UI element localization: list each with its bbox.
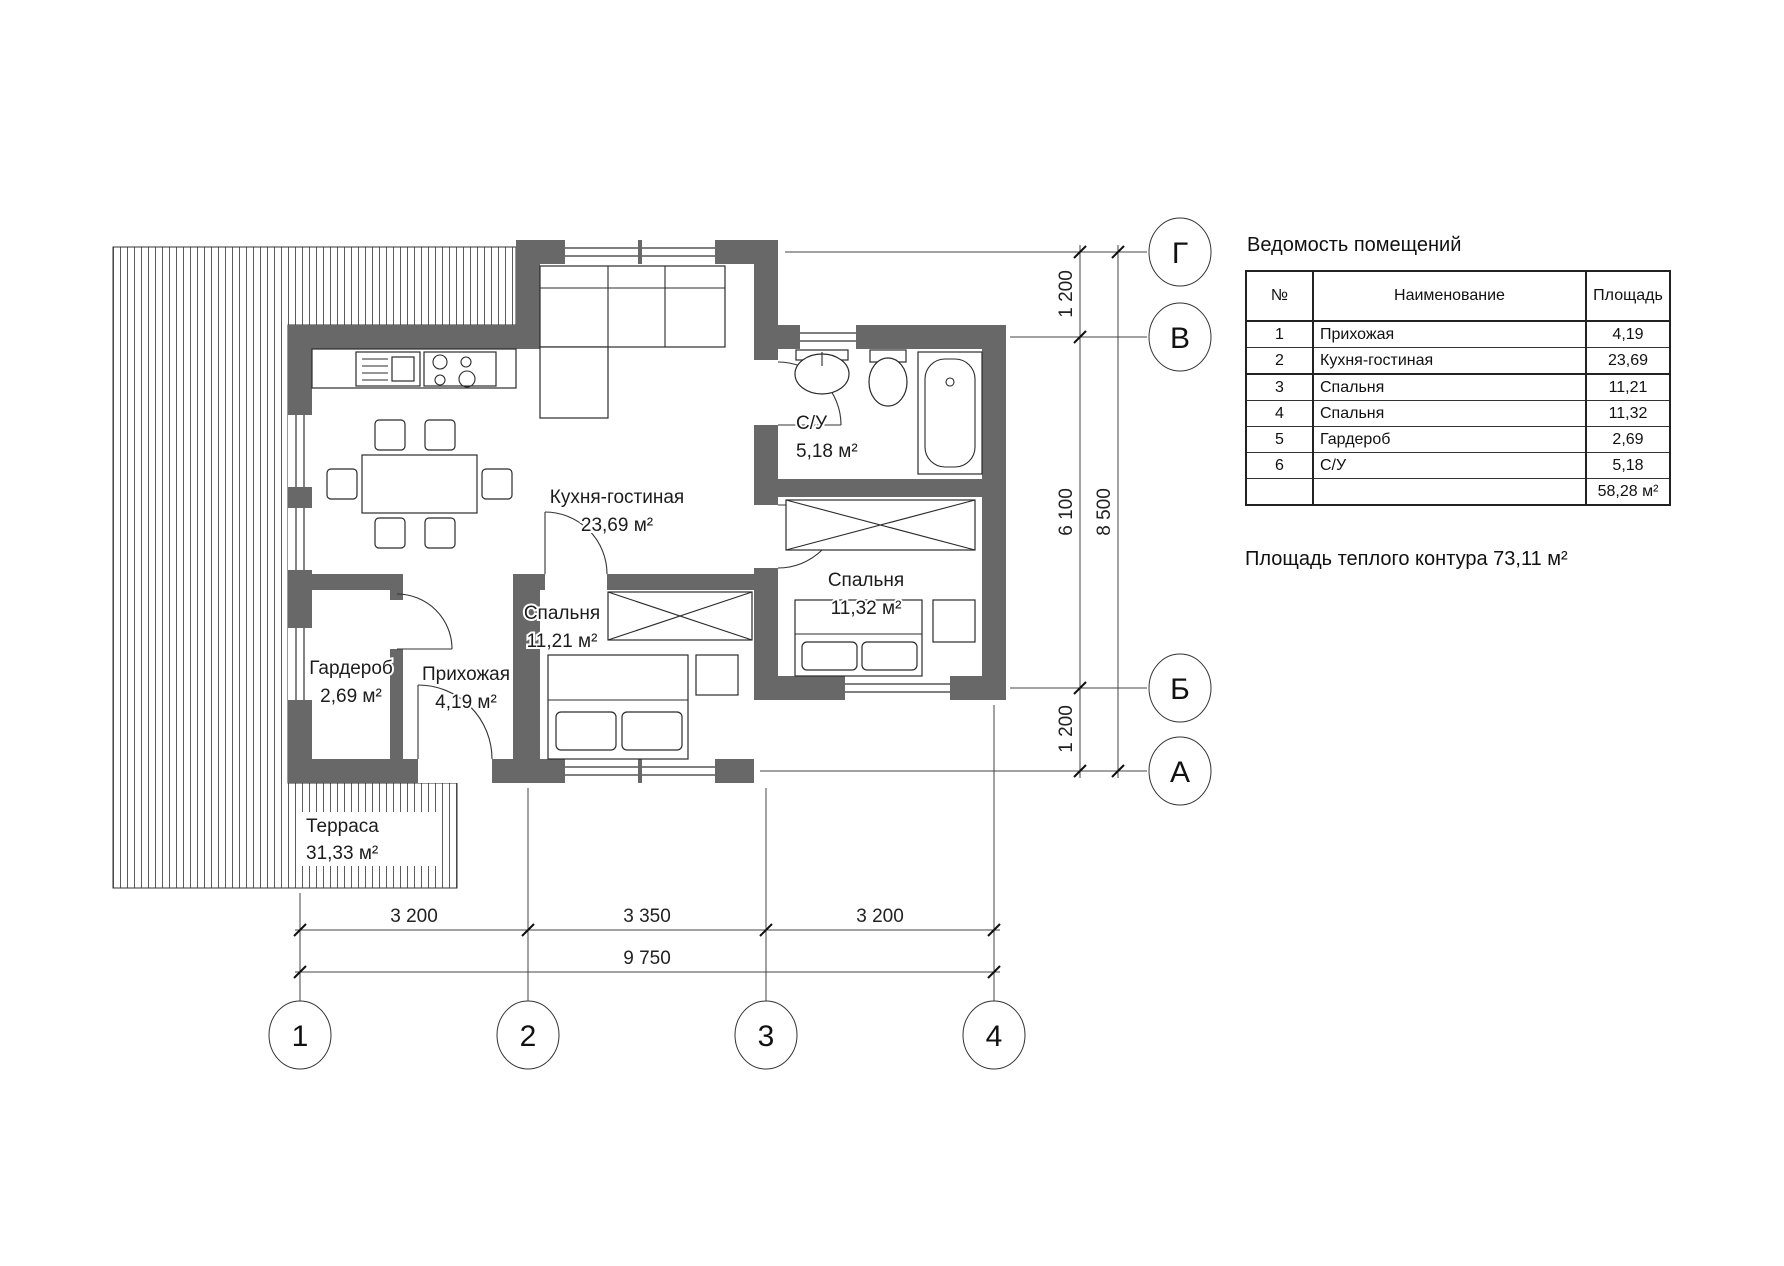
wall [982, 325, 1006, 700]
nightstand-bedroom2 [933, 600, 975, 642]
dim-right-2: 6 100 [1056, 488, 1077, 536]
dim-right-3: 1 200 [1056, 705, 1077, 753]
room-area: 4,19 м² [435, 692, 497, 713]
cell-area: 23,69 [1586, 348, 1670, 375]
cell-num: 6 [1246, 453, 1313, 479]
wall [778, 325, 800, 349]
room-label: Гардероб [309, 658, 393, 679]
table-row: 6 С/У 5,18 [1246, 453, 1670, 479]
bathtub [918, 352, 982, 474]
wall [754, 349, 778, 360]
window-kitchen-left-1 [288, 415, 312, 487]
cell-num: 1 [1246, 321, 1313, 348]
wall [390, 590, 403, 600]
cell-area: 11,32 [1586, 401, 1670, 427]
table-row: 2 Кухня-гостиная 23,69 [1246, 348, 1670, 375]
window-bedroom1-bottom [565, 759, 715, 783]
dim-right-1: 1 200 [1056, 270, 1077, 318]
table-total-row: 58,28 м² [1246, 479, 1670, 506]
kitchen-counter [312, 349, 516, 388]
room-label: Прихожая [422, 664, 510, 685]
cell-name: Гардероб [1313, 427, 1586, 453]
cell-area: 11,21 [1586, 374, 1670, 401]
wall [513, 574, 545, 590]
table-row: 3 Спальня 11,21 [1246, 374, 1670, 401]
cell-name: Спальня [1313, 401, 1586, 427]
room-label: Спальня [524, 603, 600, 624]
bathroom-sink [795, 350, 849, 394]
cell-name: Кухня-гостиная [1313, 348, 1586, 375]
wall [715, 759, 754, 783]
wardrobe-bedroom2 [786, 500, 975, 550]
floor-plan-sheet: Кухня-гостиная 23,69 м² С/У 5,18 м² Спал… [0, 0, 1784, 1266]
room-area: 2,69 м² [320, 686, 382, 707]
table-row: 1 Прихожая 4,19 [1246, 321, 1670, 348]
cell-name: С/У [1313, 453, 1586, 479]
grid-label: 4 [986, 1020, 1003, 1053]
wall [754, 568, 778, 676]
cell-name: Спальня [1313, 374, 1586, 401]
room-area: 11,32 м² [831, 598, 902, 619]
column-header-num: № [1246, 271, 1313, 321]
wall [778, 479, 982, 497]
dim-bottom-1: 3 200 [390, 906, 438, 927]
column-header-area: Площадь [1586, 271, 1670, 321]
room-area: 23,69 м² [581, 515, 653, 536]
room-area: 11,21 м² [527, 631, 598, 652]
wardrobe-bedroom1 [608, 592, 752, 640]
table-row: 4 Спальня 11,32 [1246, 401, 1670, 427]
cell-name: Прихожая [1313, 321, 1586, 348]
wall [607, 574, 754, 590]
grid-label: Г [1172, 237, 1188, 270]
wall [288, 325, 516, 349]
cell-name-empty [1313, 479, 1586, 506]
room-schedule: Ведомость помещений № Наименование Площа… [1245, 234, 1669, 506]
grid-label: 1 [292, 1020, 309, 1053]
table-bedroom1 [696, 655, 738, 695]
schedule-title: Ведомость помещений [1247, 234, 1669, 257]
wall [754, 425, 778, 505]
cell-area: 4,19 [1586, 321, 1670, 348]
wall [754, 240, 778, 349]
grid-markers-bottom: 1 2 3 4 [269, 978, 1025, 1069]
dim-bottom-2: 3 350 [623, 906, 671, 927]
cell-area: 2,69 [1586, 427, 1670, 453]
room-area: 31,33 м² [306, 843, 378, 864]
grid-label: 2 [520, 1020, 537, 1053]
cell-num: 4 [1246, 401, 1313, 427]
wall [288, 487, 312, 508]
window-bathroom-top [800, 325, 856, 349]
room-label: Кухня-гостиная [550, 487, 684, 508]
wall [516, 240, 540, 349]
cell-total-area: 58,28 м² [1586, 479, 1670, 506]
cell-area: 5,18 [1586, 453, 1670, 479]
grid-label: 3 [758, 1020, 775, 1053]
column-header-name: Наименование [1313, 271, 1586, 321]
wall [312, 574, 403, 590]
grid-markers-right: Г В Б А [1149, 218, 1211, 805]
room-label: Спальня [828, 570, 904, 591]
bed-bedroom1 [548, 655, 688, 759]
cell-num: 5 [1246, 427, 1313, 453]
table-row: 5 Гардероб 2,69 [1246, 427, 1670, 453]
cell-num-empty [1246, 479, 1313, 506]
grid-label: А [1170, 756, 1190, 789]
room-label: С/У [796, 413, 828, 434]
dim-right-total: 8 500 [1094, 488, 1115, 536]
wall [950, 676, 1006, 700]
window-bedroom2-bottom [845, 676, 950, 700]
cell-num: 3 [1246, 374, 1313, 401]
window-kitchen-left-2 [288, 508, 312, 570]
wall [492, 759, 565, 783]
room-label: Терраса [306, 816, 379, 837]
schedule-table: № Наименование Площадь 1 Прихожая 4,19 2… [1245, 270, 1671, 506]
window-living-top [565, 240, 715, 264]
grid-label: В [1170, 322, 1190, 355]
wall [754, 676, 845, 700]
warm-contour-note: Площадь теплого контура 73,11 м² [1245, 548, 1568, 571]
floor-plan-canvas: Кухня-гостиная 23,69 м² С/У 5,18 м² Спал… [0, 0, 1784, 1266]
grid-label: Б [1170, 673, 1190, 706]
wall [288, 759, 418, 783]
dim-bottom-3: 3 200 [856, 906, 904, 927]
room-area: 5,18 м² [796, 441, 858, 462]
dim-bottom-total: 9 750 [623, 948, 671, 969]
wall [288, 325, 312, 415]
wall [288, 570, 312, 628]
cell-num: 2 [1246, 348, 1313, 375]
toilet [869, 350, 907, 406]
